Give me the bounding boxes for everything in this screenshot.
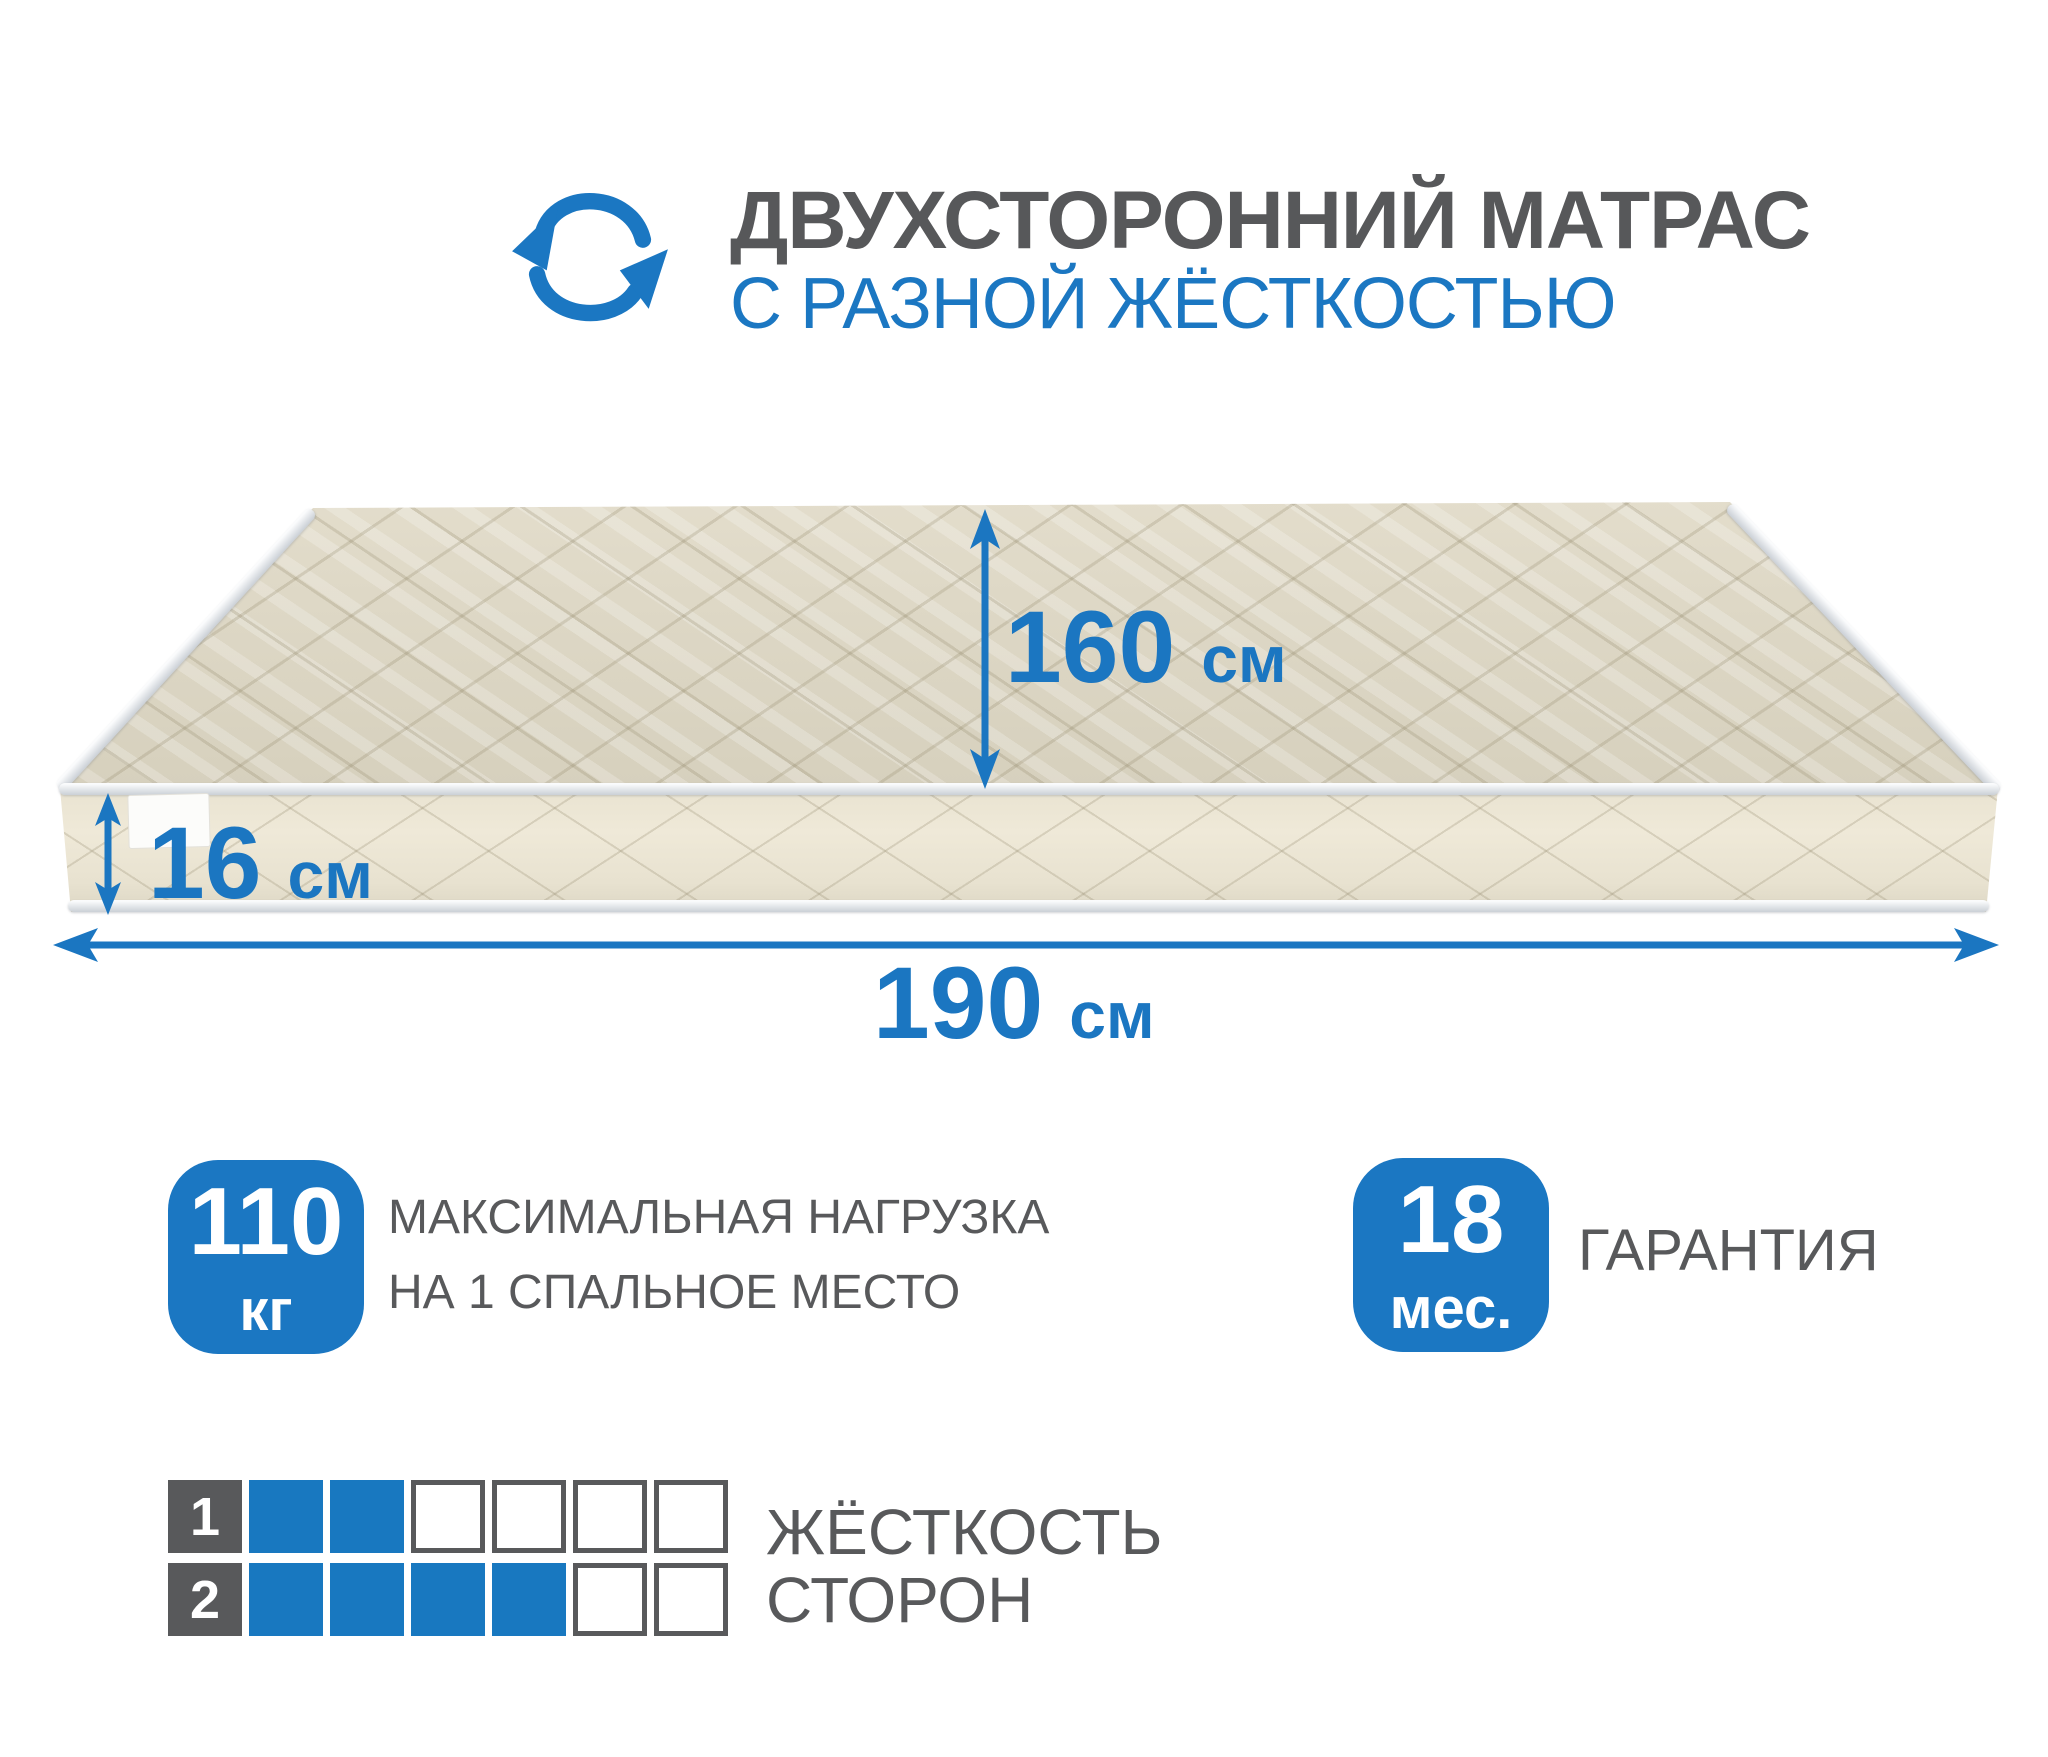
- firmness-square-filled: [330, 1563, 404, 1636]
- height-unit: см: [287, 842, 373, 908]
- warranty-value: 18: [1398, 1172, 1505, 1268]
- firmness-square-filled: [330, 1480, 404, 1553]
- max-load-label-line2: НА 1 СПАЛЬНОЕ МЕСТО: [388, 1255, 1049, 1330]
- firmness-square-filled: [411, 1563, 485, 1636]
- width-dimension-label: 190 см: [873, 952, 1155, 1054]
- depth-value: 160: [1005, 596, 1175, 698]
- max-load-value: 110: [189, 1174, 344, 1270]
- max-load-unit: кг: [239, 1282, 292, 1340]
- warranty-badge: 18 мес.: [1353, 1158, 1549, 1352]
- width-unit: см: [1069, 982, 1155, 1048]
- depth-dimension-arrow: [967, 508, 1003, 790]
- firmness-row-side-2: 2: [168, 1563, 728, 1636]
- firmness-square-filled: [249, 1480, 323, 1553]
- rotate-cycle-icon: [506, 180, 674, 332]
- firmness-label-line2: СТОРОН: [766, 1568, 1033, 1632]
- height-dimension-label: 16 см: [148, 812, 373, 914]
- firmness-square-empty: [573, 1480, 647, 1553]
- firmness-row-side-1: 1: [168, 1480, 728, 1553]
- firmness-square-empty: [411, 1480, 485, 1553]
- firmness-square-filled: [492, 1563, 566, 1636]
- infographic-canvas: ДВУХСТОРОННИЙ МАТРАС С РАЗНОЙ ЖЁСТКОСТЬЮ…: [0, 0, 2048, 1757]
- page-title: ДВУХСТОРОННИЙ МАТРАС: [730, 180, 1810, 262]
- firmness-square-empty: [654, 1480, 728, 1553]
- depth-unit: см: [1201, 626, 1287, 692]
- firmness-square-filled: [249, 1563, 323, 1636]
- height-dimension-arrow: [90, 792, 126, 916]
- max-load-badge: 110 кг: [168, 1160, 364, 1354]
- max-load-label: МАКСИМАЛЬНАЯ НАГРУЗКА НА 1 СПАЛЬНОЕ МЕСТ…: [388, 1180, 1049, 1330]
- height-value: 16: [148, 812, 261, 914]
- firmness-square-empty: [492, 1480, 566, 1553]
- depth-dimension-label: 160 см: [1005, 596, 1287, 698]
- width-value: 190: [873, 952, 1043, 1054]
- max-load-label-line1: МАКСИМАЛЬНАЯ НАГРУЗКА: [388, 1180, 1049, 1255]
- firmness-label-line1: ЖЁСТКОСТЬ: [766, 1500, 1163, 1564]
- firmness-side-number: 1: [168, 1480, 242, 1553]
- firmness-square-empty: [654, 1563, 728, 1636]
- warranty-unit: мес.: [1390, 1280, 1513, 1338]
- firmness-square-empty: [573, 1563, 647, 1636]
- firmness-side-number: 2: [168, 1563, 242, 1636]
- warranty-label: ГАРАНТИЯ: [1578, 1222, 1879, 1280]
- mattress-piping-front-top: [59, 783, 1999, 795]
- page-subtitle: С РАЗНОЙ ЖЁСТКОСТЬЮ: [730, 268, 1616, 340]
